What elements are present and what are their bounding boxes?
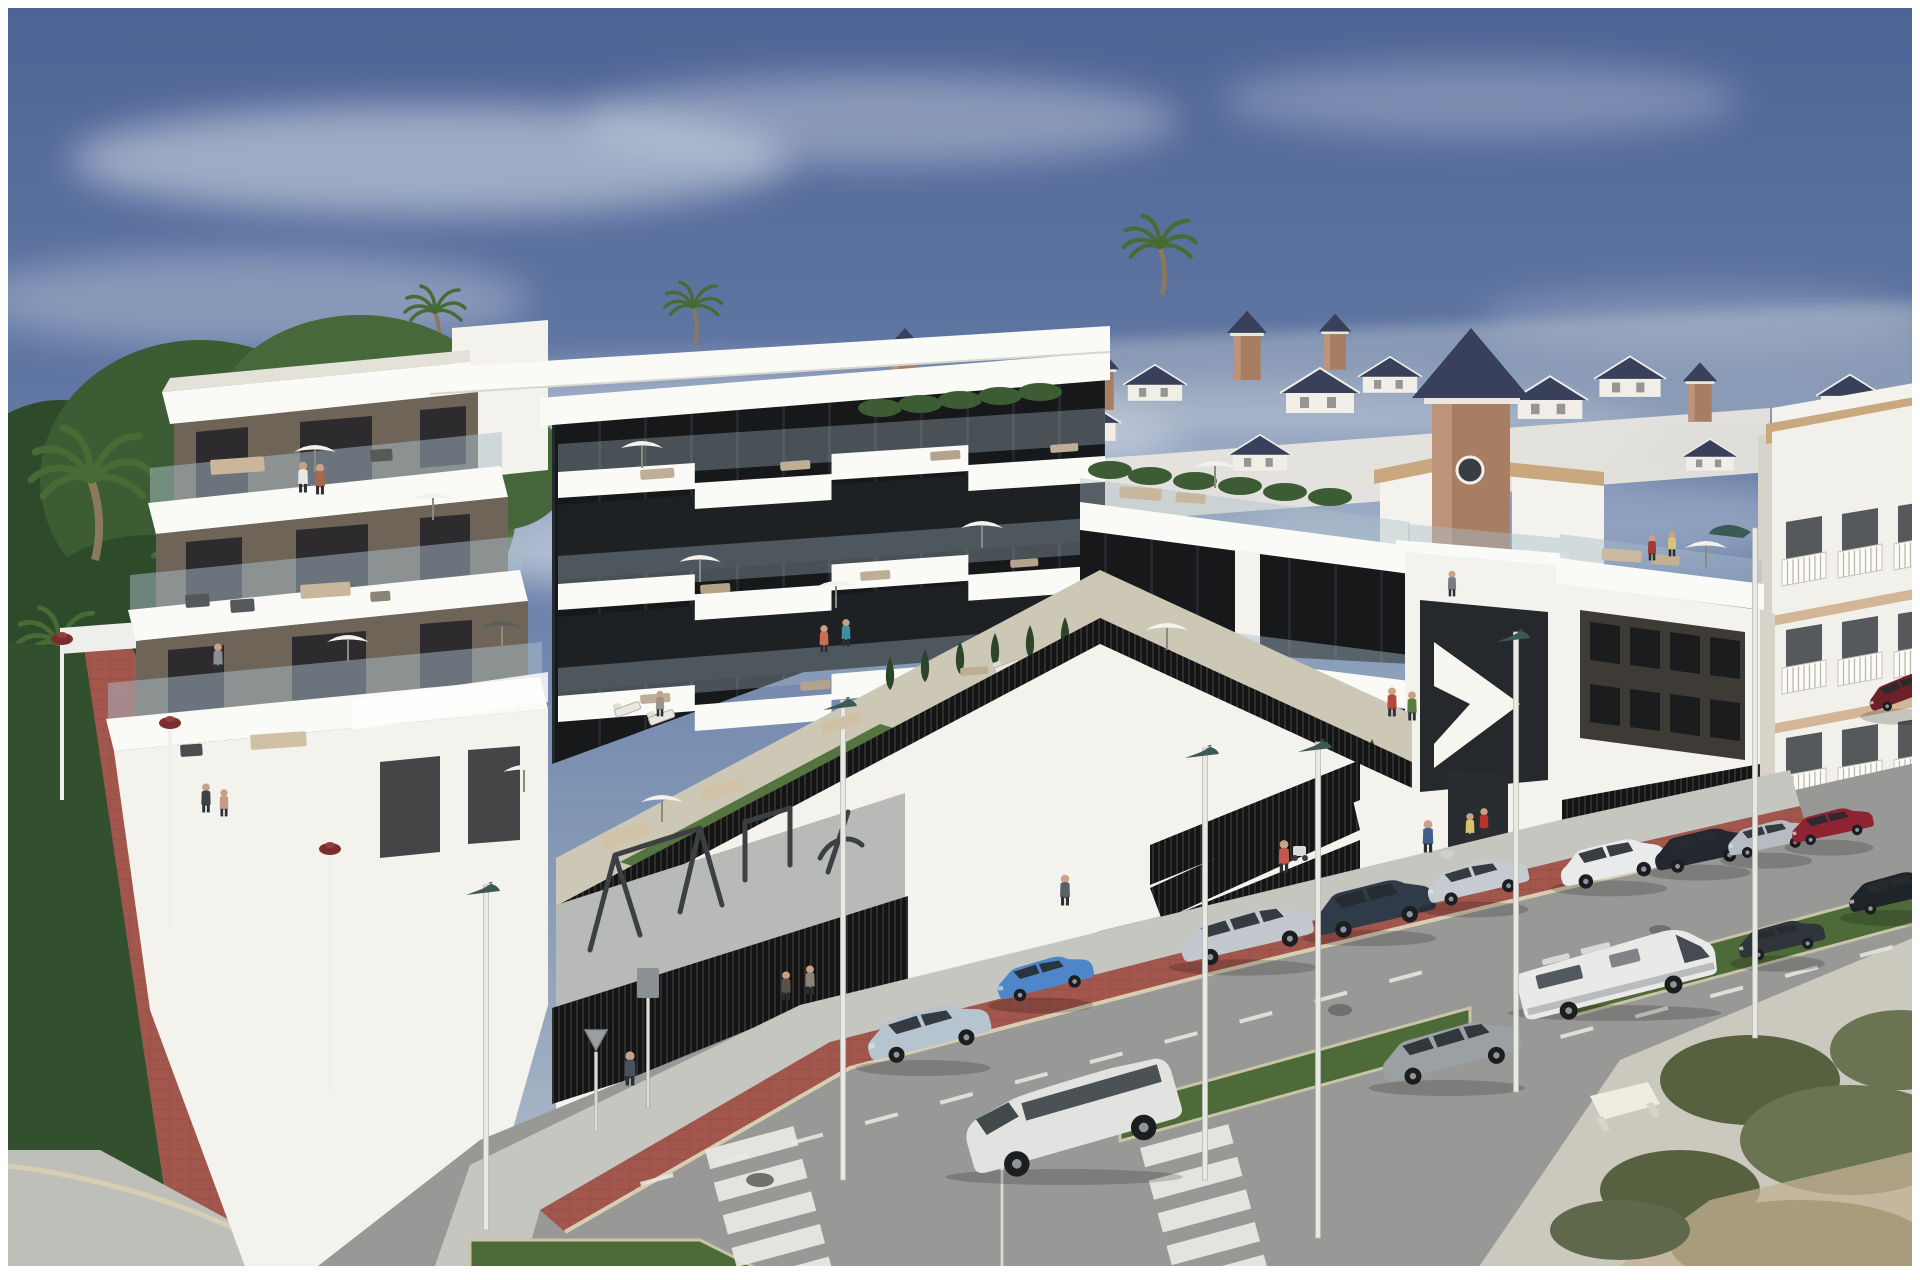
cloud [1220,62,1740,138]
roof-garden-bush [1218,477,1262,495]
balcony [1782,516,1826,586]
outdoor-sofa [180,743,203,757]
stroller [1293,846,1306,856]
roof-garden-bush [1308,488,1352,506]
roof-garden-bush [1173,472,1217,490]
roof-garden-bush [978,387,1022,405]
balcony [1838,508,1882,578]
window [1670,632,1700,674]
roof-garden-bush [1088,461,1132,479]
window [1630,627,1660,669]
window [1590,684,1620,726]
window [1710,637,1740,679]
window [1630,689,1660,731]
balcony [1782,624,1826,694]
architectural-render-photo [0,0,1920,1280]
balcony [1838,616,1882,686]
roof-garden-bush [1128,467,1172,485]
dog [1440,850,1454,858]
roof-garden-bush [858,399,902,417]
outdoor-sofa [1175,492,1206,504]
manhole [746,1173,774,1187]
render-canvas [0,0,1920,1280]
manhole [1328,1004,1352,1016]
roof-garden-bush [1018,383,1062,401]
outdoor-sofa [370,448,393,462]
window [1710,699,1740,741]
outdoor-sofa [230,598,255,613]
cloud [580,75,1180,165]
window [1590,622,1620,664]
outdoor-sofa [185,593,210,608]
outdoor-sofa [370,591,391,602]
roof-garden-bush [898,395,942,413]
outdoor-sofa [1651,554,1680,566]
window [1670,694,1700,736]
roof-garden-bush [1263,483,1307,501]
roof-garden-bush [938,391,982,409]
